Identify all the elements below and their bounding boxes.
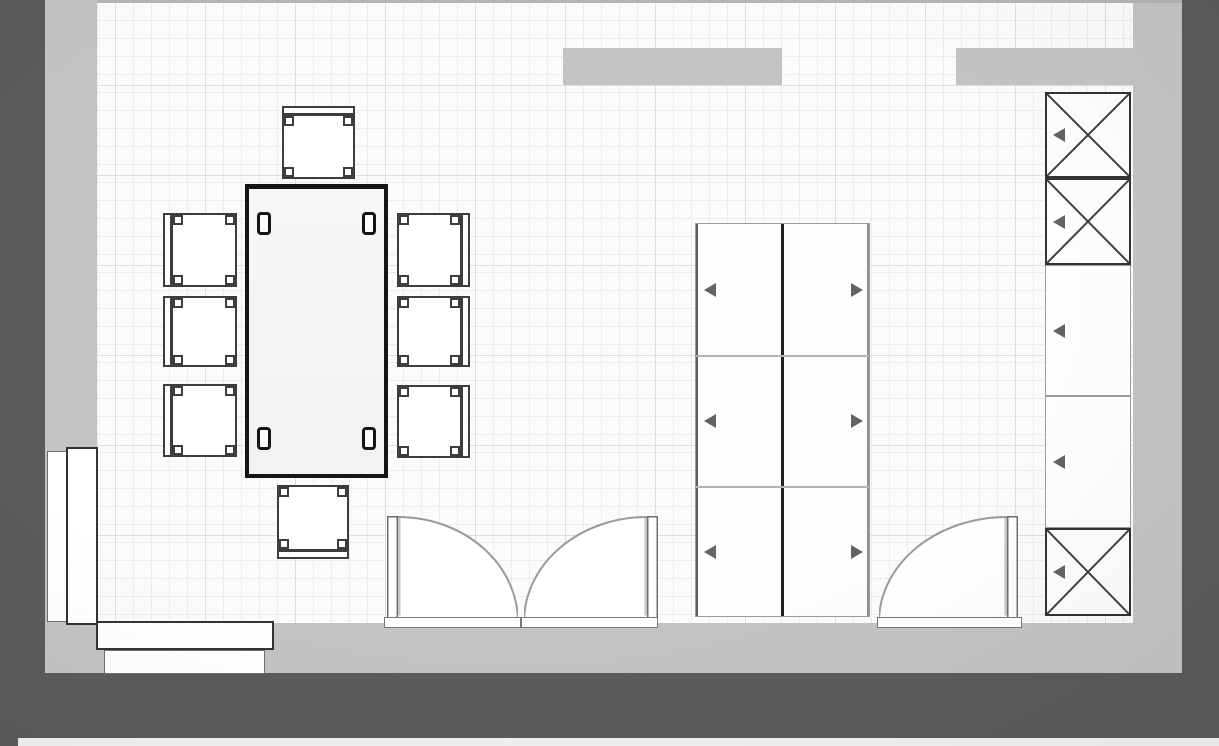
chair-left-1[interactable] <box>163 213 237 287</box>
door-swing-arrow-icon <box>704 545 716 559</box>
window-bottom-wall-part-2[interactable] <box>104 650 265 674</box>
chair-seat <box>397 385 462 458</box>
chair-corner-post <box>173 298 183 308</box>
chair-seat <box>171 213 237 287</box>
soffit-top-right[interactable] <box>956 48 1182 85</box>
chair-backrest <box>461 296 470 367</box>
dining-table[interactable] <box>245 184 388 478</box>
wall-right <box>1133 0 1182 673</box>
chair-right-3[interactable] <box>397 385 470 458</box>
chair-corner-post <box>173 445 183 455</box>
entry-door[interactable] <box>879 516 1018 622</box>
chair-corner-post <box>343 167 353 177</box>
table-leg-marker-4 <box>362 427 376 450</box>
chair-seat <box>277 485 349 551</box>
door-threshold <box>877 617 1022 628</box>
chair-seat <box>397 296 462 367</box>
chair-corner-post <box>450 355 460 365</box>
chair-corner-post <box>173 355 183 365</box>
outer-right <box>1182 0 1219 738</box>
chair-corner-post <box>343 116 353 126</box>
window-left-wall-part-1[interactable] <box>47 451 68 622</box>
chair-seat <box>282 114 355 179</box>
chair-corner-post <box>450 298 460 308</box>
wardrobe-left-edge <box>696 224 698 616</box>
chair-corner-post <box>173 386 183 396</box>
soffit-top-left[interactable] <box>563 48 782 85</box>
door-swing-arrow-icon <box>704 283 716 297</box>
chair-corner-post <box>225 298 235 308</box>
door-swing-icon <box>524 516 658 622</box>
window-bottom-wall-part-1[interactable] <box>96 621 274 650</box>
chair-right-1[interactable] <box>397 213 470 287</box>
door-threshold <box>521 617 658 628</box>
chair-right-2[interactable] <box>397 296 470 367</box>
wardrobe-center-divider <box>781 224 784 616</box>
door-threshold <box>384 617 521 628</box>
door-swing-arrow-icon <box>704 414 716 428</box>
chair-backrest <box>277 550 349 559</box>
chair-corner-post <box>279 487 289 497</box>
chair-corner-post <box>279 539 289 549</box>
door-swing-arrow-icon <box>1053 215 1065 229</box>
chair-corner-post <box>225 386 235 396</box>
door-swing-arrow-icon <box>1053 565 1065 579</box>
door-swing-arrow-icon <box>1053 128 1065 142</box>
chair-corner-post <box>399 298 409 308</box>
chair-left-3[interactable] <box>163 384 237 457</box>
double-wardrobe[interactable] <box>695 223 870 617</box>
double-door-left-leaf[interactable] <box>387 516 518 622</box>
chair-seat <box>171 296 237 367</box>
tall-cabinet-column[interactable] <box>1045 92 1131 616</box>
chair-corner-post <box>284 116 294 126</box>
canvas-bottom-strip <box>18 738 1219 746</box>
outer-bottom <box>0 673 1219 738</box>
door-swing-icon <box>387 516 518 622</box>
wardrobe-shelf-line <box>696 355 869 357</box>
double-door-right-leaf[interactable] <box>524 516 658 622</box>
table-leg-marker-3 <box>257 427 271 450</box>
wardrobe-right-edge <box>867 224 869 616</box>
chair-corner-post <box>284 167 294 177</box>
table-leg-marker-1 <box>257 212 271 235</box>
chair-corner-post <box>399 355 409 365</box>
door-swing-arrow-icon <box>851 283 863 297</box>
chair-corner-post <box>337 487 347 497</box>
chair-corner-post <box>450 387 460 397</box>
chair-bottom[interactable] <box>277 485 349 559</box>
chair-backrest <box>461 213 470 287</box>
window-left-wall-part-2[interactable] <box>66 447 98 625</box>
chair-seat <box>397 213 462 287</box>
chair-corner-post <box>399 215 409 225</box>
chair-corner-post <box>173 275 183 285</box>
chair-seat <box>171 384 237 457</box>
chair-corner-post <box>225 355 235 365</box>
chair-corner-post <box>225 445 235 455</box>
chair-corner-post <box>337 539 347 549</box>
chair-corner-post <box>225 215 235 225</box>
chair-left-2[interactable] <box>163 296 237 367</box>
chair-corner-post <box>173 215 183 225</box>
outer-left <box>0 0 45 746</box>
table-leg-marker-2 <box>362 212 376 235</box>
chair-corner-post <box>399 446 409 456</box>
door-swing-arrow-icon <box>1053 324 1065 338</box>
wardrobe-shelf-line <box>696 486 869 488</box>
room-top-edge-line <box>97 0 1182 3</box>
door-swing-arrow-icon <box>1053 455 1065 469</box>
floor-plan-canvas <box>0 0 1219 746</box>
chair-top[interactable] <box>282 106 355 179</box>
chair-corner-post <box>399 387 409 397</box>
chair-corner-post <box>225 275 235 285</box>
door-swing-arrow-icon <box>851 414 863 428</box>
chair-corner-post <box>450 215 460 225</box>
chair-backrest <box>461 385 470 458</box>
chair-corner-post <box>450 446 460 456</box>
door-swing-icon <box>879 516 1018 622</box>
chair-corner-post <box>399 275 409 285</box>
chair-corner-post <box>450 275 460 285</box>
door-swing-arrow-icon <box>851 545 863 559</box>
